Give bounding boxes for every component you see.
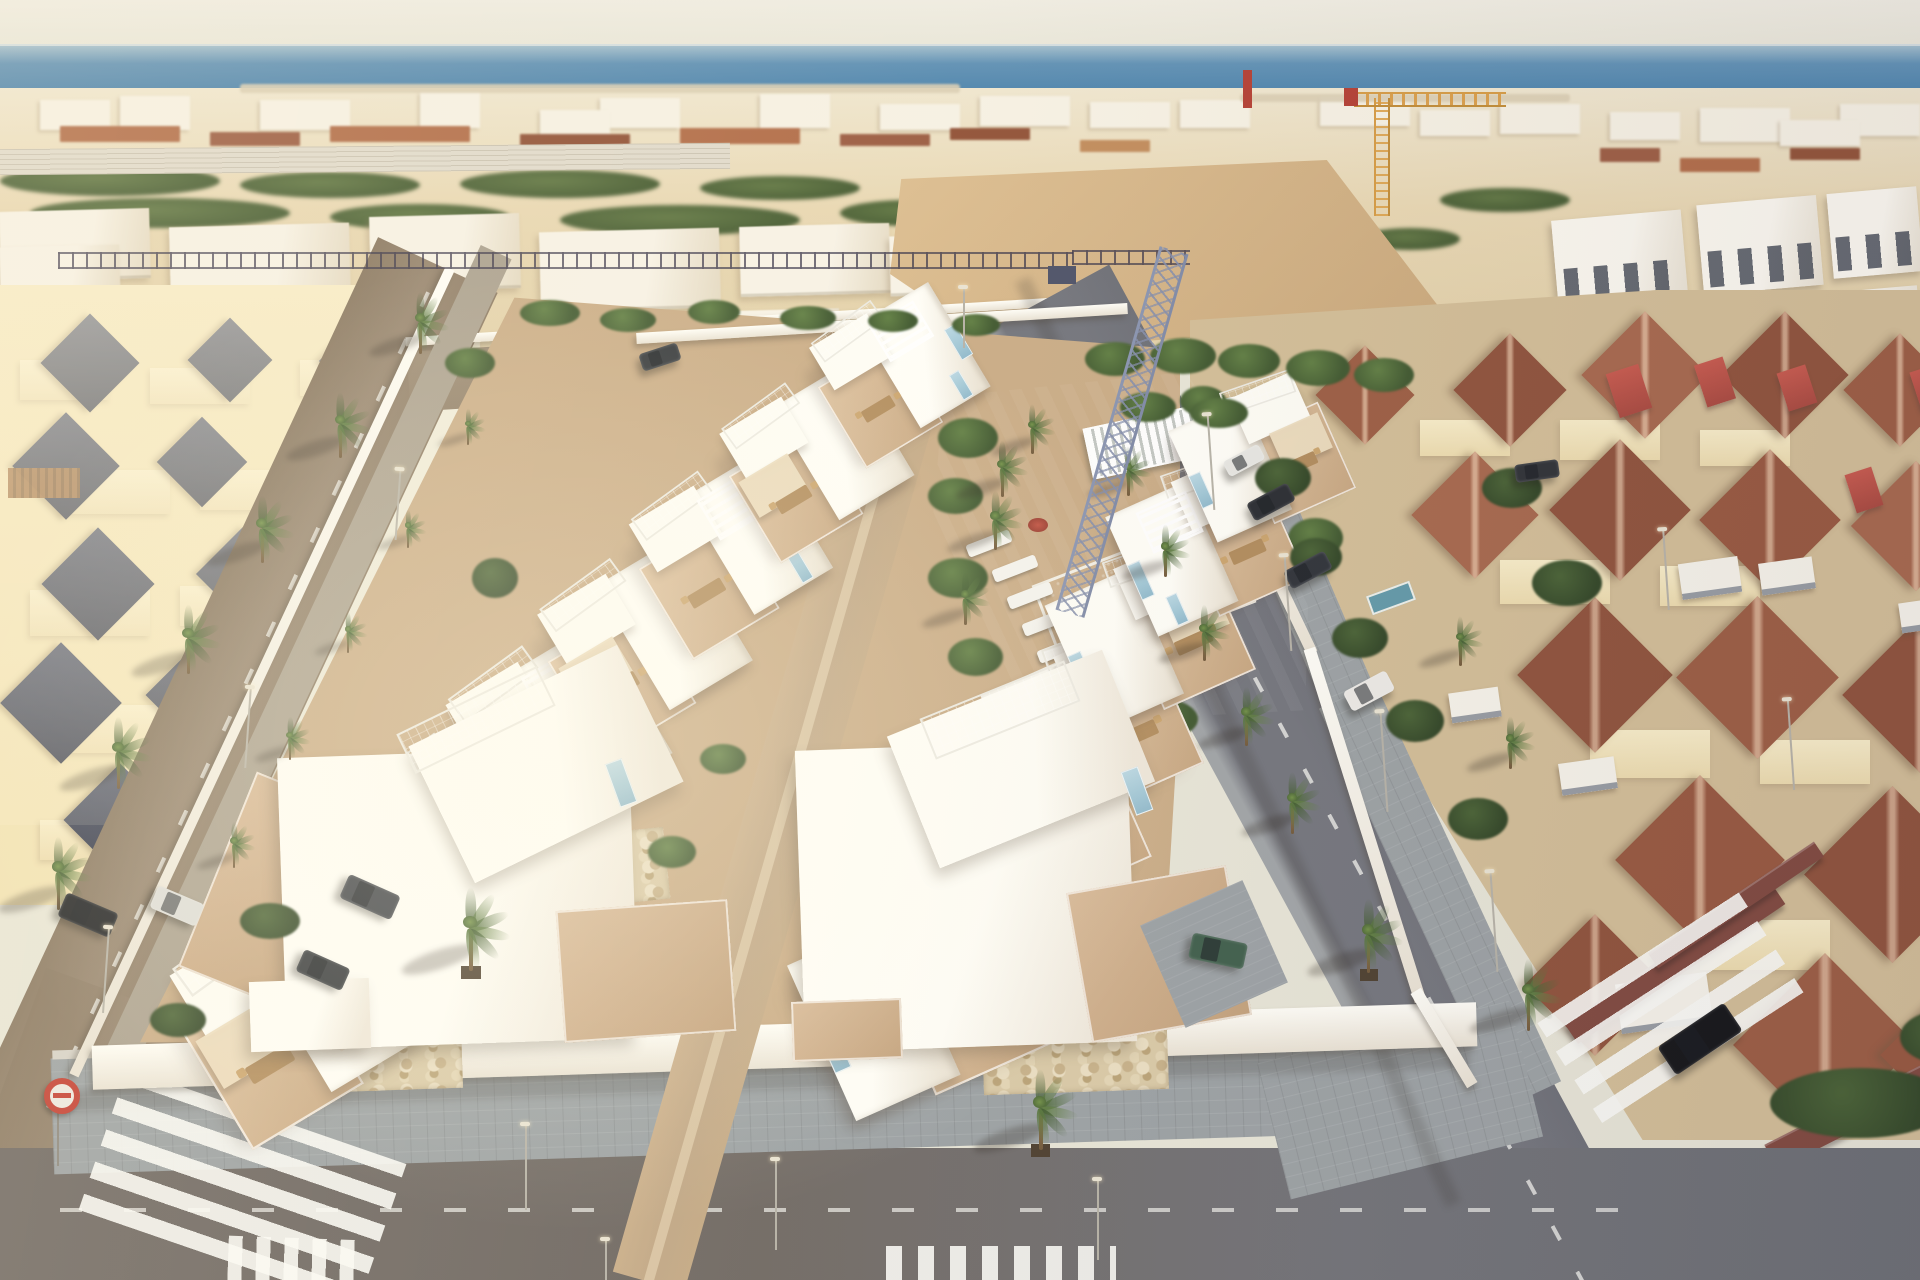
palm-crown (112, 742, 124, 752)
palm-crown (961, 590, 970, 598)
palm-tree (965, 492, 1026, 564)
palm-crown (415, 313, 425, 322)
palm-tree (1491, 960, 1565, 1047)
car-windshield (647, 350, 663, 367)
palm-tree (938, 573, 992, 638)
streetlight (520, 1125, 532, 1210)
palm-crown (463, 916, 477, 928)
tree-canopy (1218, 344, 1280, 378)
car-windshield (1353, 683, 1374, 706)
streetlight-pole (605, 1240, 607, 1280)
streetlight-head (1484, 869, 1494, 874)
car-windshield (1293, 563, 1313, 584)
streetlight-pole (1207, 415, 1216, 510)
crane-red-tip (1344, 88, 1358, 106)
palm-tree (1175, 605, 1233, 673)
tree-canopy (240, 903, 300, 939)
tower-crane-jib (58, 252, 1073, 269)
streetlight (600, 1240, 612, 1280)
palm-crown (335, 415, 346, 424)
sign-disc (44, 1078, 80, 1114)
palm-tree (327, 612, 369, 662)
palm-crown (1287, 793, 1297, 802)
red-mast (1243, 70, 1252, 108)
palm-crown (1362, 924, 1374, 935)
palm-crown (990, 511, 1000, 520)
tree-canopy (1354, 358, 1414, 392)
garden-shrub (948, 638, 1003, 676)
corner-villa-volume (249, 978, 371, 1052)
palm-crown (52, 861, 64, 872)
palm-crown (405, 522, 411, 528)
palm-tree (449, 408, 487, 454)
streetlight-pole (244, 688, 252, 768)
tree-canopy (600, 308, 656, 332)
tree-canopy (780, 306, 836, 330)
streetlight-pole (1097, 1180, 1099, 1260)
car-windshield (306, 955, 328, 979)
tree-canopy (1532, 560, 1602, 606)
palm-tree (1006, 404, 1057, 465)
palm-tree (210, 822, 257, 878)
tree-canopy (1386, 700, 1444, 742)
streetlight-head (1201, 412, 1211, 417)
tree-canopy (868, 310, 918, 332)
tree-canopy (1286, 350, 1350, 386)
car-windshield (69, 899, 93, 926)
palm-tree (1434, 616, 1485, 677)
palm-tree (1138, 525, 1192, 590)
streetlight-head (1782, 697, 1792, 702)
yellow-crane-jib (1354, 92, 1506, 107)
streetlight-pole (102, 928, 110, 1013)
streetlight-pole (963, 288, 965, 348)
car-windshield (1231, 454, 1248, 471)
streetlight-pole (1787, 700, 1795, 790)
streetlight-pole (1380, 712, 1389, 812)
streetlight-pole (525, 1125, 527, 1210)
villa-wall (1760, 740, 1870, 784)
streetlight-head (1374, 709, 1384, 714)
townhouse-windows (1836, 231, 1918, 272)
palm-tree (1260, 772, 1324, 848)
streetlight-pole (1284, 556, 1293, 651)
crosswalk (886, 1246, 1116, 1280)
palm-tree (427, 888, 513, 991)
palm-crown (230, 837, 237, 844)
tree-canopy (1332, 618, 1388, 658)
white-dormer (1898, 597, 1920, 634)
streetlight (958, 288, 970, 348)
car-windshield (160, 891, 182, 915)
streetlight-head (958, 285, 968, 289)
palm-tree (1330, 899, 1407, 990)
streetlight-head (394, 467, 404, 472)
palm-crown (1506, 734, 1515, 742)
tree-canopy (688, 300, 740, 324)
streetlight (1092, 1180, 1104, 1260)
wood-pergola (8, 468, 80, 498)
corner-villa-terrace (791, 998, 903, 1062)
tree-canopy (472, 558, 518, 598)
streetlight-head (1657, 527, 1667, 532)
palm-crown (1241, 707, 1251, 716)
townhouse-block (1696, 195, 1823, 295)
crosswalk (227, 1236, 364, 1280)
palm-tree (1216, 688, 1277, 760)
corner-villa-terrace (556, 899, 737, 1043)
walkway-planter (700, 744, 746, 774)
aerial-development-render (0, 0, 1920, 1280)
red-flower-bed (1028, 518, 1048, 532)
tree-canopy (1448, 798, 1508, 840)
tree-canopy (1190, 398, 1248, 428)
streetlight-pole (395, 470, 402, 540)
palm-tree (81, 718, 155, 805)
car-windshield (1524, 464, 1539, 480)
streetlight-head (103, 925, 113, 930)
tree-canopy (445, 348, 495, 378)
palm-tree (1483, 717, 1537, 782)
palm-crown (1028, 421, 1036, 428)
streetlight-head (770, 1157, 780, 1161)
streetlight-pole (775, 1160, 777, 1250)
townhouse-windows (1708, 242, 1816, 287)
palm-tree (388, 292, 452, 368)
palm-tree (227, 495, 297, 579)
palm-tree (306, 393, 373, 473)
palm-tree (268, 717, 313, 770)
streetlight-head (520, 1122, 530, 1126)
streetlight-pole (1490, 872, 1499, 972)
tree-canopy (520, 300, 580, 326)
streetlight (770, 1160, 782, 1250)
streetlight-head (600, 1237, 610, 1241)
sign-bar (53, 1093, 71, 1098)
car-windshield (1256, 495, 1276, 516)
tree-canopy (150, 1003, 206, 1037)
tower-crane-cab (1048, 266, 1076, 284)
palm-crown (465, 421, 471, 426)
streetlight-head (1092, 1177, 1102, 1181)
streetlight-head (245, 685, 255, 690)
palm-crown (182, 628, 193, 638)
mid-town-building (539, 228, 721, 313)
palm-crown (1456, 633, 1464, 640)
walkway-planter (648, 836, 696, 868)
townhouse-block (1826, 186, 1920, 279)
streetlight-pole (1662, 530, 1670, 610)
palm-tree (998, 1069, 1081, 1168)
palm-crown (1522, 984, 1534, 994)
yellow-crane-mast (1374, 98, 1390, 216)
car-windshield (1200, 937, 1221, 962)
car-windshield (351, 881, 375, 908)
palm-crown (1161, 542, 1170, 550)
palm-tree (152, 604, 224, 689)
streetlight-head (1278, 553, 1288, 558)
no-entry-sign (44, 1078, 72, 1170)
